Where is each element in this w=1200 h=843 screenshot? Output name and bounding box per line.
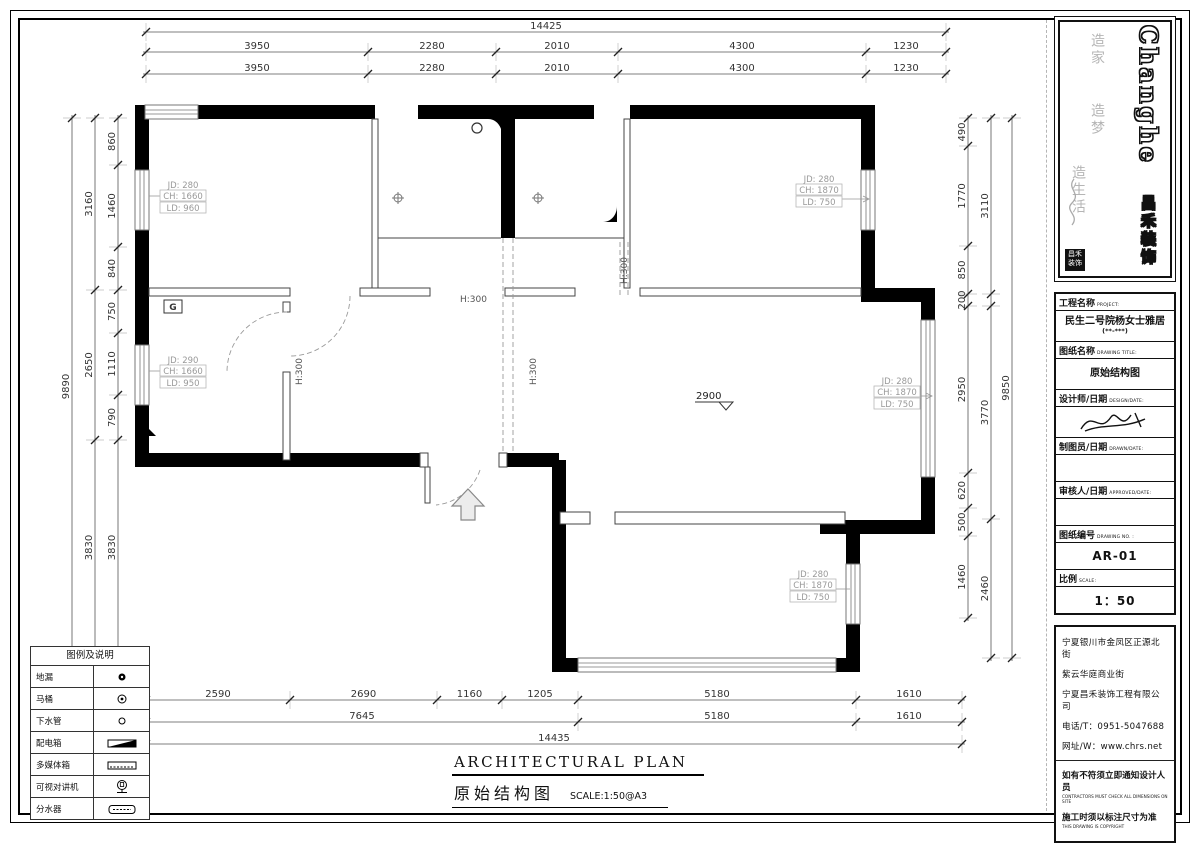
window-label: JD: 280	[881, 377, 913, 387]
designer-label: 设计师/日期	[1059, 392, 1107, 405]
intercom-icon	[94, 776, 149, 797]
legend-label: 地漏	[31, 666, 94, 687]
scale-value: 1：50	[1056, 587, 1174, 613]
window-label: LD: 950	[166, 379, 199, 389]
down-pipe-icon	[94, 710, 149, 731]
dimension-label: 1460	[107, 193, 118, 218]
dimension-label: 14425	[530, 21, 562, 32]
dimension-label: 840	[107, 259, 118, 278]
signature-scribble	[1075, 407, 1155, 437]
logo-box: Changhe 昌禾装饰 造家 造梦 造生活 昌禾 装饰	[1054, 16, 1176, 282]
ceiling-height-label: 2900	[696, 391, 721, 402]
drawing-title-block: ARCHITECTURAL PLAN 原始结构图 SCALE:1:50@A3	[452, 753, 708, 808]
dimension-label: 1460	[957, 564, 968, 589]
window-label: CH: 1870	[877, 388, 917, 398]
dimension-label: 2280	[419, 63, 444, 74]
drafter-label-en: DRAWN/DATE:	[1109, 447, 1143, 452]
dimension-label: 3830	[107, 535, 118, 560]
sill-height-label: H:300	[620, 257, 630, 284]
scale-label-en: SCALE:	[1079, 579, 1096, 584]
power-box-icon	[94, 732, 149, 753]
dimension-label: 1205	[527, 689, 552, 700]
window-label: LD: 750	[796, 593, 829, 603]
entry-arrow-icon	[452, 489, 484, 520]
note-2: 施工时须以标注尺寸为准	[1062, 811, 1168, 823]
sill-height-label: H:300	[529, 358, 539, 385]
scale-label: 比例	[1059, 572, 1077, 585]
legend-label: 多媒体箱	[31, 754, 94, 775]
grid-mark-label: G	[169, 303, 176, 313]
brand-logo: Changhe	[1134, 25, 1163, 165]
floor-drain-icon	[94, 666, 149, 687]
floor-plan: G 2900 H:300 H:300 H:300 H:300 JD: 280 C…	[0, 0, 1040, 833]
door-jamb-mark	[488, 119, 502, 135]
legend-label: 配电箱	[31, 732, 94, 753]
project-unit-text: (**-***)	[1102, 328, 1128, 336]
company-seal: 昌禾 装饰	[1065, 249, 1085, 271]
legend-row: 分水器	[31, 798, 149, 819]
dimension-label: 750	[107, 302, 118, 321]
window-label: CH: 1870	[799, 186, 839, 196]
legend-label: 分水器	[31, 798, 94, 819]
company-website: 网址/W：www.chrs.net	[1062, 740, 1168, 752]
company-address-2: 紫云华庭商业街	[1062, 668, 1168, 680]
note-1: 如有不符须立即通知设计人员	[1062, 769, 1168, 793]
dimension-label: 1770	[957, 183, 968, 208]
auditor-label-en: APPROVED/DATE:	[1109, 491, 1151, 496]
brand-name-cn: 昌禾装饰	[1138, 195, 1159, 267]
window-label: JD: 280	[167, 181, 199, 191]
legend-row: 下水管	[31, 710, 149, 732]
legend-row: 地漏	[31, 666, 149, 688]
dimension-label: 2950	[957, 377, 968, 402]
title-info-table: 工程名称PROJECT: 民生二号院杨女士雅居 (**-***) 图纸名称DRA…	[1054, 292, 1176, 615]
legend-title: 图例及说明	[31, 647, 149, 666]
dimension-label: 500	[957, 512, 968, 531]
dimension-label: 1610	[896, 689, 921, 700]
window-labels: JD: 280 CH: 1660 LD: 960 JD: 290 CH: 166…	[149, 175, 932, 603]
dimension-label: 1160	[457, 689, 482, 700]
dimension-label: 2460	[980, 576, 991, 601]
dimension-label: 790	[107, 408, 118, 427]
dimension-label: 1230	[893, 41, 918, 52]
sill-height-label: H:300	[460, 295, 487, 305]
window-label: JD: 280	[803, 175, 835, 185]
dimension-label: 620	[957, 481, 968, 500]
legend-row: 可视对讲机	[31, 776, 149, 798]
dimension-label: 860	[107, 132, 118, 151]
company-name: 宁夏昌禾装饰工程有限公司	[1062, 688, 1168, 712]
legend-row: 马桶	[31, 688, 149, 710]
drawing-scale-note: SCALE:1:50@A3	[570, 791, 647, 804]
drawing-title-cn: 原始结构图	[454, 780, 554, 804]
dimension-label: 2590	[205, 689, 230, 700]
drawing-title-en: ARCHITECTURAL PLAN	[452, 753, 704, 776]
legend-label: 可视对讲机	[31, 776, 94, 797]
title-block: Changhe 昌禾装饰 造家 造梦 造生活 昌禾 装饰 工程名称PROJECT…	[1054, 16, 1176, 843]
seal-text: 昌禾	[1065, 250, 1085, 259]
drafter-label: 制图员/日期	[1059, 440, 1107, 453]
dimension-label: 14435	[538, 733, 570, 744]
company-address-1: 宁夏银川市金凤区正源北街	[1062, 636, 1168, 660]
dimension-label: 5180	[704, 689, 729, 700]
company-phone: 电话/T：0951-5047688	[1062, 720, 1168, 732]
door-stop-icon	[472, 123, 482, 133]
door-jamb-mark	[603, 206, 617, 222]
door-arc	[290, 296, 350, 356]
dimension-label: 2690	[351, 689, 376, 700]
dimension-label: 3770	[980, 400, 991, 425]
divider	[1056, 760, 1174, 761]
sill-height-labels: H:300 H:300 H:300 H:300	[295, 257, 630, 385]
project-label-en: PROJECT:	[1097, 303, 1119, 308]
drawing-no-label-en: DRAWING NO. :	[1097, 535, 1134, 540]
dimension-label: 3950	[244, 63, 269, 74]
media-box-icon	[94, 754, 149, 775]
dimension-label: 1610	[896, 711, 921, 722]
dimension-label: 2010	[544, 63, 569, 74]
dimension-label: 7645	[349, 711, 374, 722]
door-arc	[227, 312, 287, 372]
window-label: JD: 280	[797, 570, 829, 580]
legend-label: 下水管	[31, 710, 94, 731]
window-label: LD: 750	[802, 198, 835, 208]
auditor-value	[1056, 499, 1174, 526]
dimension-label: 5180	[704, 711, 729, 722]
dimension-label: 850	[957, 260, 968, 279]
legend-row: 配电箱	[31, 732, 149, 754]
dimension-label: 1230	[893, 63, 918, 74]
project-name: 民生二号院杨女士雅居 (**-***)	[1056, 311, 1174, 342]
dimension-label: 3110	[980, 193, 991, 218]
drawing-name-label: 图纸名称	[1059, 344, 1095, 357]
dimension-label: 4300	[729, 63, 754, 74]
dimension-label: 200	[957, 290, 968, 309]
dimension-label: 3950	[244, 41, 269, 52]
designer-label-en: DESIGN/DATE:	[1109, 399, 1144, 404]
dimension-label: 2010	[544, 41, 569, 52]
drawing-no-label: 图纸编号	[1059, 528, 1095, 541]
window-label: CH: 1660	[163, 192, 203, 202]
dimension-label: 3830	[84, 535, 95, 560]
drafter-value	[1056, 455, 1174, 482]
calligraphy-scribble	[1061, 175, 1085, 231]
dimension-label: 490	[957, 122, 968, 141]
dimension-label: 3160	[84, 191, 95, 216]
note-1-en: CONTRACTORS MUST CHECK ALL DIMENSIONS ON…	[1062, 794, 1168, 804]
fold-line	[1046, 20, 1047, 811]
level-mark-icon	[719, 402, 733, 410]
drawing-sheet: { "logo": { "brand": "Changhe", "brand_c…	[0, 0, 1200, 833]
dimension-chains: 1442539502280201043001230395022802010430…	[61, 21, 1021, 753]
note-2-en: THIS DRAWING IS COPYRIGHT	[1062, 824, 1168, 829]
window-label: CH: 1660	[163, 367, 203, 377]
dimension-label: 2650	[84, 352, 95, 377]
drawing-name-label-en: DRAWING TITLE:	[1097, 351, 1137, 356]
project-label: 工程名称	[1059, 296, 1095, 309]
sill-height-label: H:300	[295, 358, 305, 385]
company-info-box: 宁夏银川市金凤区正源北街 紫云华庭商业街 宁夏昌禾装饰工程有限公司 电话/T：0…	[1054, 625, 1176, 843]
legend-label: 马桶	[31, 688, 94, 709]
drawing-no-value: AR-01	[1056, 543, 1174, 570]
drawing-name: 原始结构图	[1056, 359, 1174, 390]
dimension-label: 9890	[61, 374, 72, 399]
seal-text: 装饰	[1065, 259, 1085, 268]
designer-signature	[1056, 407, 1174, 438]
legend-table: 图例及说明 地漏 马桶 下水管 配电箱 多媒体箱 可视对讲机	[30, 646, 150, 820]
legend-row: 多媒体箱	[31, 754, 149, 776]
slogan-text: 造家	[1087, 33, 1107, 67]
slogan-text: 造梦	[1087, 103, 1107, 137]
auditor-label: 审核人/日期	[1059, 484, 1107, 497]
dimension-label: 9850	[1001, 375, 1012, 400]
window-label: LD: 960	[166, 204, 199, 214]
window-label: JD: 290	[167, 356, 199, 366]
toilet-icon	[94, 688, 149, 709]
dimension-label: 1110	[107, 351, 118, 376]
dimension-label: 4300	[729, 41, 754, 52]
manifold-icon	[94, 798, 149, 819]
window-label: LD: 750	[880, 400, 913, 410]
window-label: CH: 1870	[793, 581, 833, 591]
dimension-label: 2280	[419, 41, 444, 52]
